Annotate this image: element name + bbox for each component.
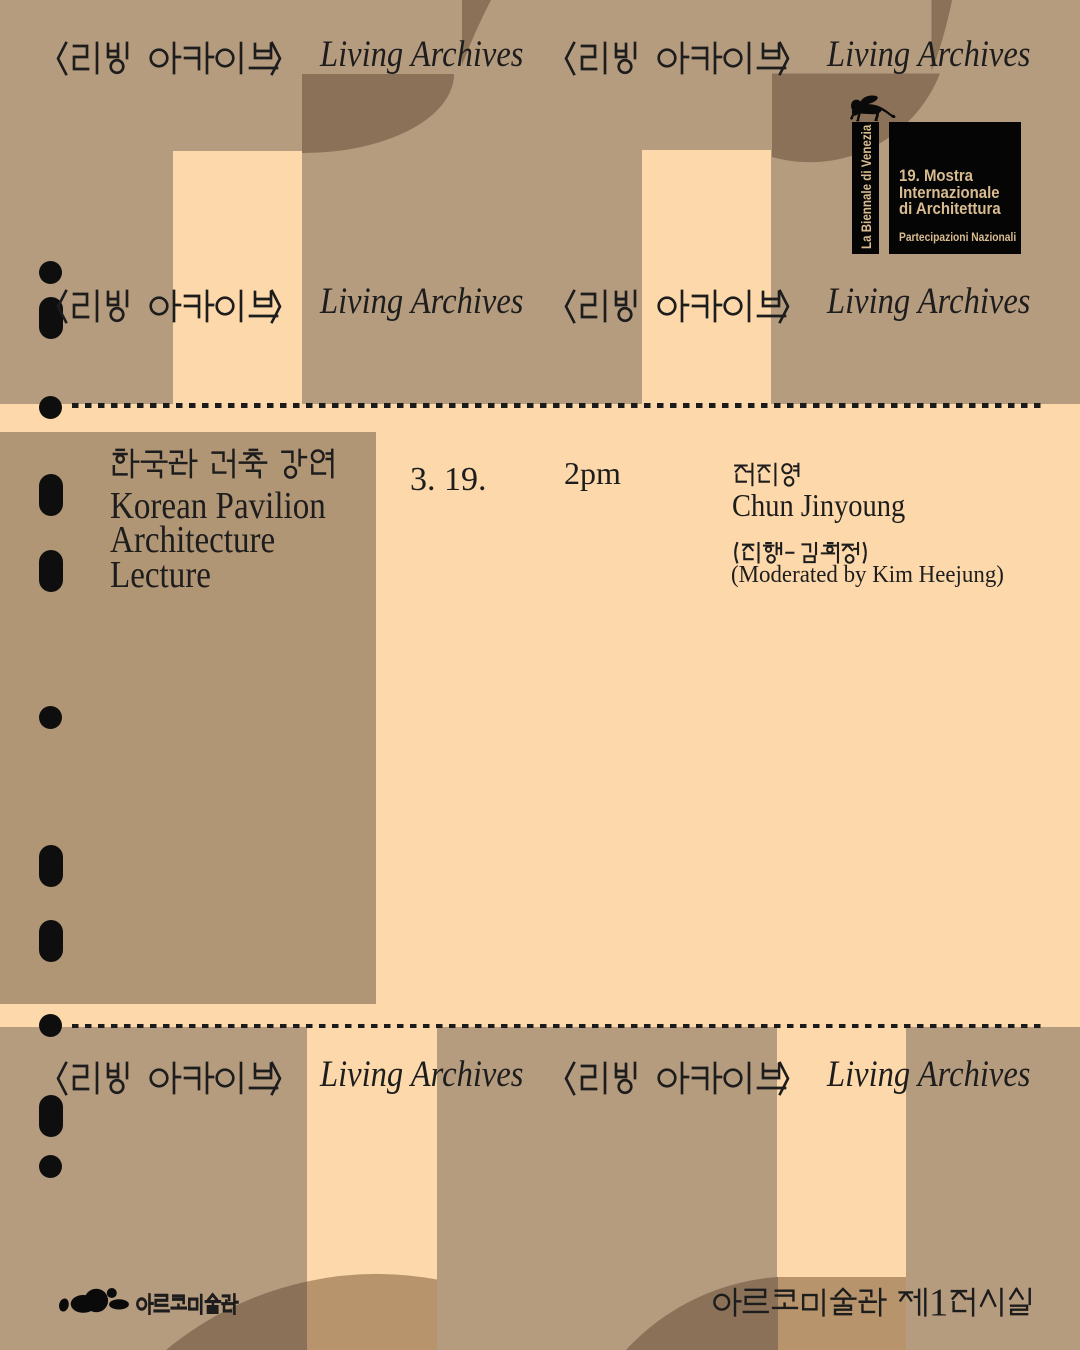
svg-text:1: 1	[929, 1281, 948, 1324]
